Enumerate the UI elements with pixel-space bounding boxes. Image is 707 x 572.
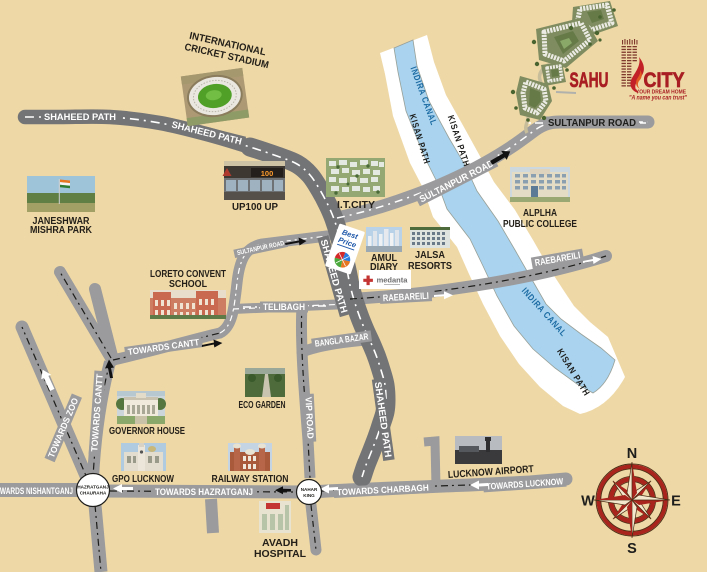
svg-text:"A name you can trust": "A name you can trust" xyxy=(629,95,687,102)
svg-text:AVADH: AVADH xyxy=(262,538,298,549)
svg-text:100: 100 xyxy=(261,169,274,178)
svg-text:RESORTS: RESORTS xyxy=(408,261,452,272)
svg-text:medanta: medanta xyxy=(377,276,409,285)
svg-text:KING: KING xyxy=(303,493,315,498)
svg-text:ECO GARDEN: ECO GARDEN xyxy=(239,400,286,411)
svg-text:HOSPITAL: HOSPITAL xyxy=(254,549,306,560)
svg-text:GOVERNOR HOUSE: GOVERNOR HOUSE xyxy=(109,426,185,437)
svg-text:SCHOOL: SCHOOL xyxy=(169,279,207,290)
svg-text:UP100 UP: UP100 UP xyxy=(232,202,278,213)
svg-text:W: W xyxy=(581,494,595,510)
svg-text:S: S xyxy=(627,541,637,557)
svg-text:E: E xyxy=(671,494,681,510)
svg-text:TELIBAGH: TELIBAGH xyxy=(263,302,305,312)
svg-text:SHAHEED PATH: SHAHEED PATH xyxy=(44,112,116,123)
svg-text:N: N xyxy=(627,446,637,462)
svg-text:JALSA: JALSA xyxy=(415,250,445,261)
svg-text:PUBLIC COLLEGE: PUBLIC COLLEGE xyxy=(503,219,577,230)
svg-text:GPO LUCKNOW: GPO LUCKNOW xyxy=(112,474,174,485)
svg-text:TOWARDS NISHANTGANJ: TOWARDS NISHANTGANJ xyxy=(0,486,73,496)
svg-text:I.T.CITY: I.T.CITY xyxy=(337,200,375,211)
svg-text:ALPLHA: ALPLHA xyxy=(523,208,557,219)
svg-text:TOWARDS HAZRATGANJ: TOWARDS HAZRATGANJ xyxy=(155,487,253,497)
svg-text:SAHU: SAHU xyxy=(570,69,609,92)
svg-text:NAHAR: NAHAR xyxy=(301,487,318,492)
svg-text:HAZRATGANJ: HAZRATGANJ xyxy=(77,485,109,490)
svg-text:CHAURAHA: CHAURAHA xyxy=(80,491,107,496)
svg-text:MISHRA PARK: MISHRA PARK xyxy=(30,225,93,236)
svg-text:SULTANPUR ROAD: SULTANPUR ROAD xyxy=(548,118,636,129)
svg-text:RAILWAY STATION: RAILWAY STATION xyxy=(212,474,289,485)
